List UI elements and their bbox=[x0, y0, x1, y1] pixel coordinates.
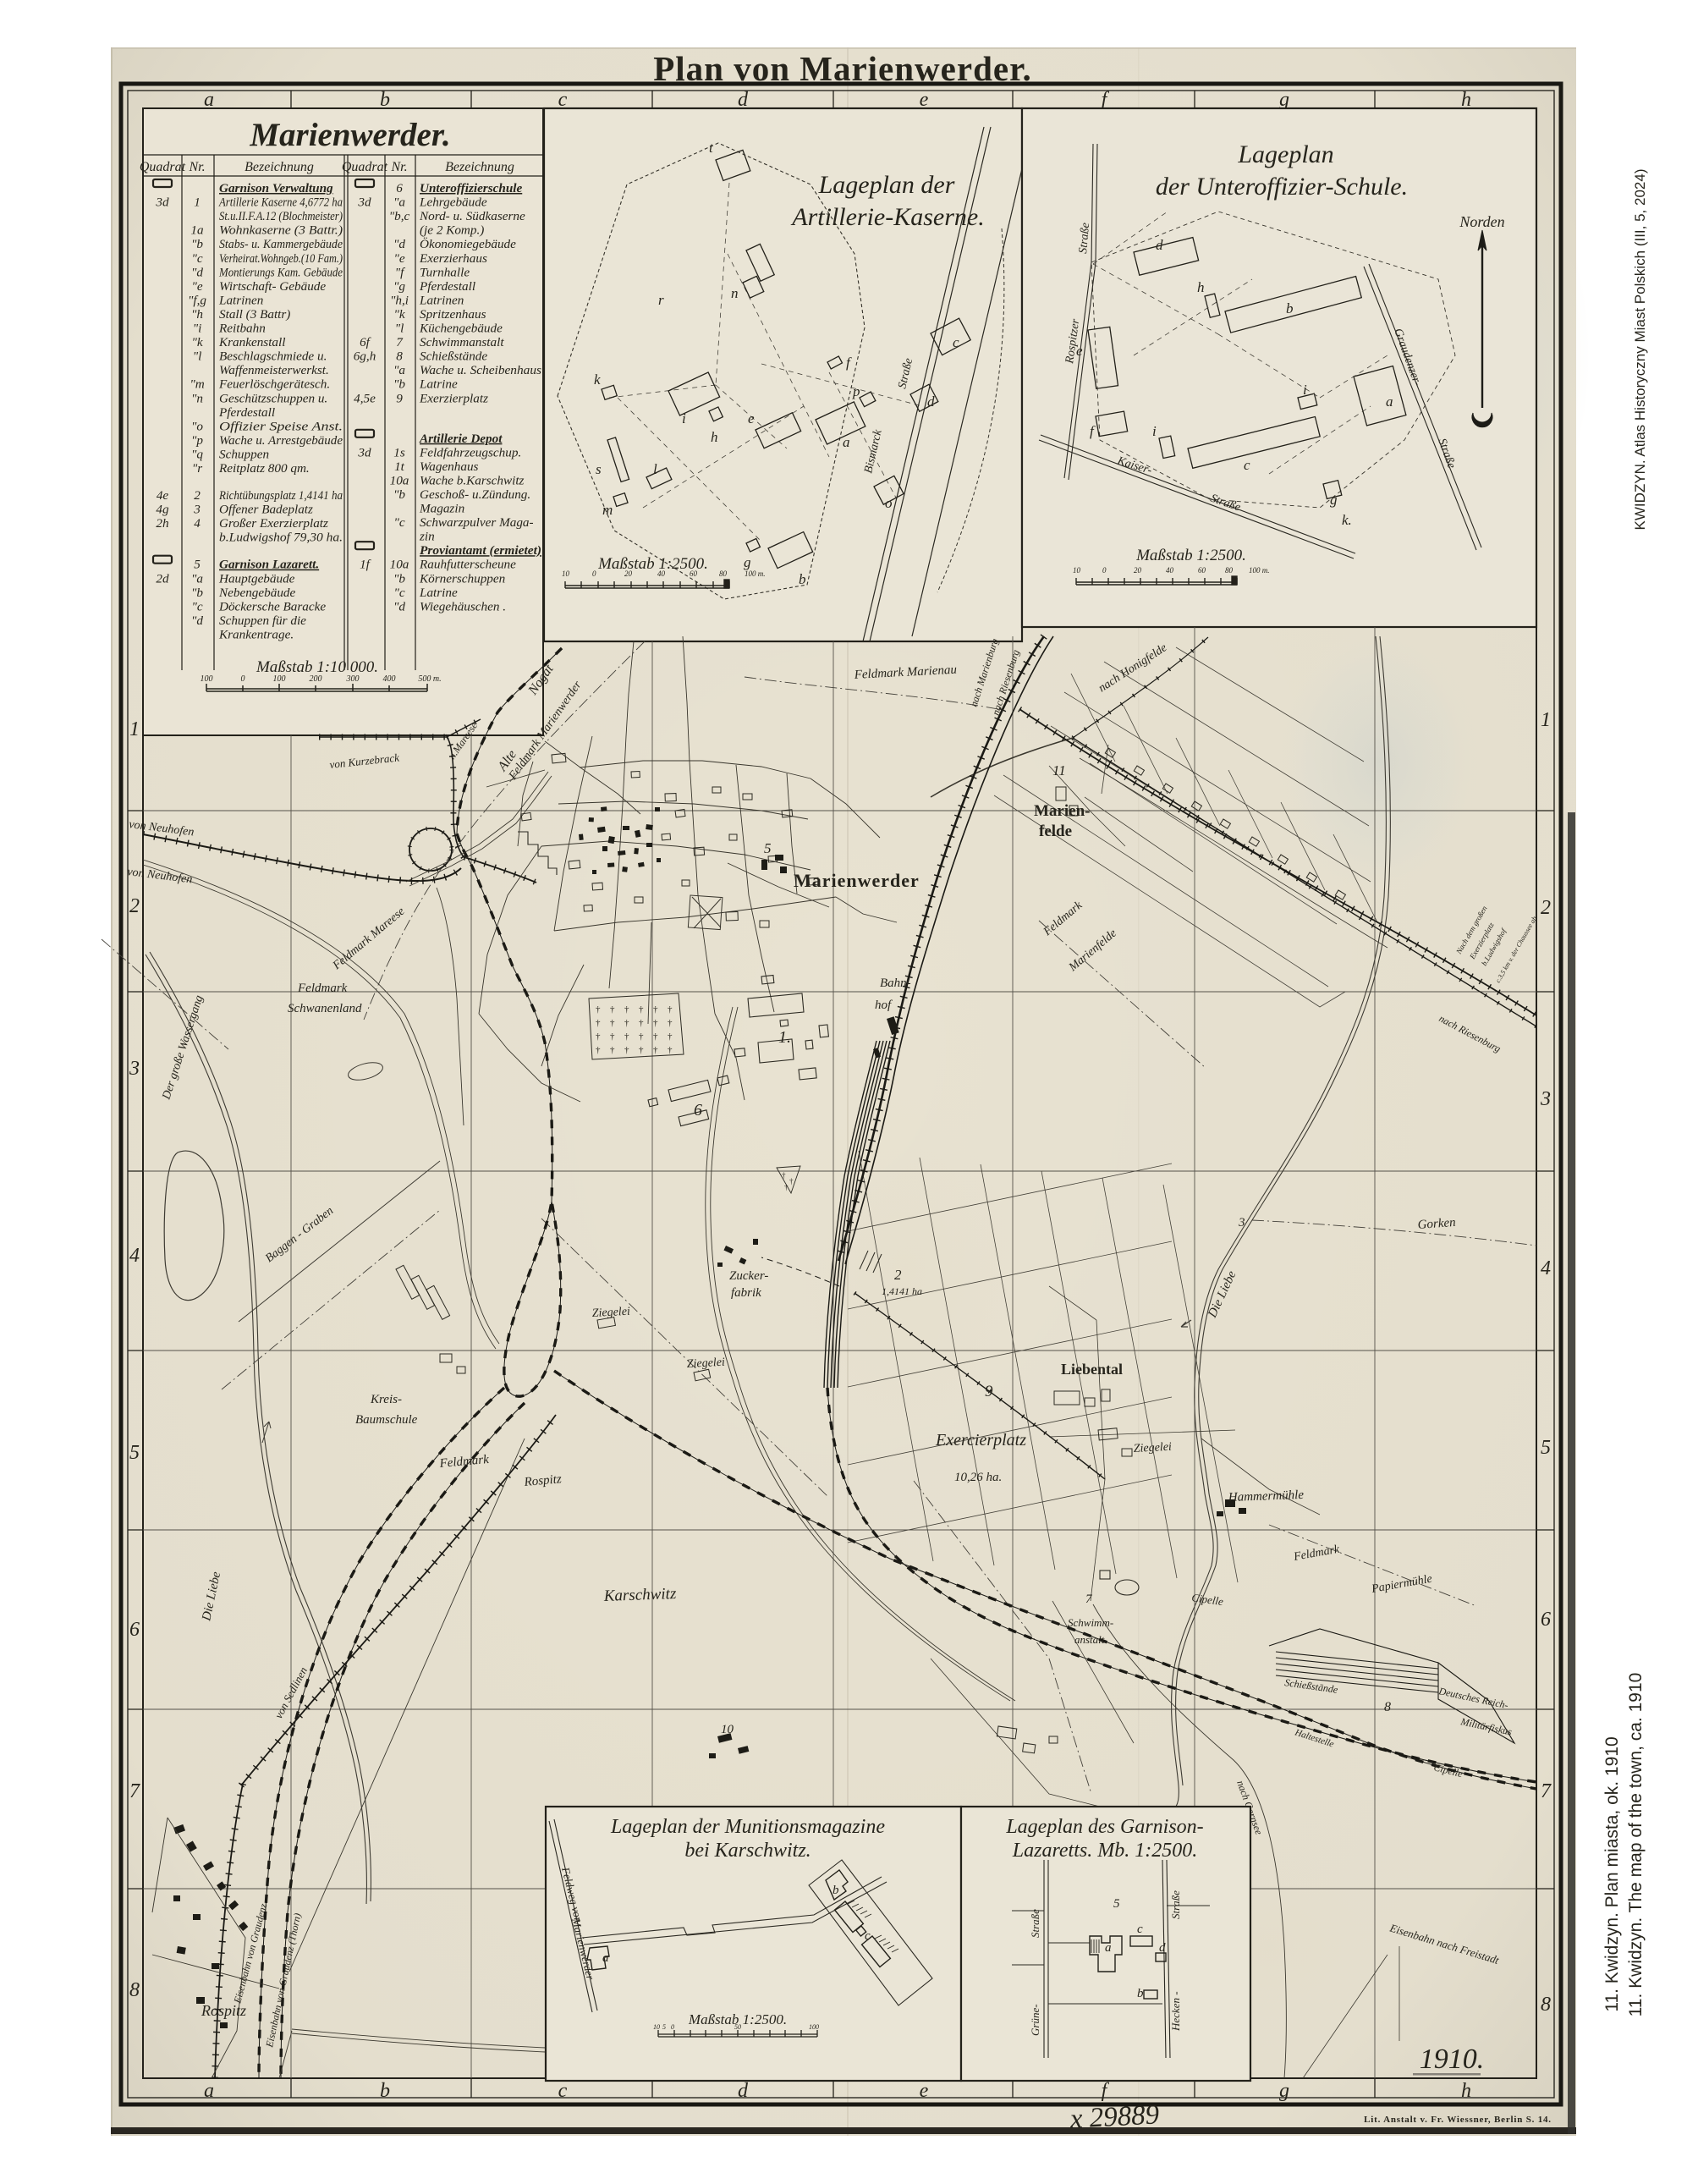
svg-text:"a: "a bbox=[191, 571, 203, 586]
svg-text:400: 400 bbox=[383, 674, 396, 684]
svg-text:†: † bbox=[624, 1045, 629, 1055]
svg-text:"g: "g bbox=[393, 279, 405, 294]
svg-text:Exerzierplatz: Exerzierplatz bbox=[419, 391, 488, 405]
svg-text:Maßstab 1:2500.: Maßstab 1:2500. bbox=[1135, 547, 1246, 564]
svg-text:10: 10 bbox=[1073, 566, 1081, 575]
svg-text:c: c bbox=[1137, 1923, 1143, 1936]
svg-text:Bahn-: Bahn- bbox=[880, 976, 911, 990]
svg-text:2: 2 bbox=[129, 895, 140, 917]
svg-text:"a: "a bbox=[393, 363, 405, 377]
svg-text:†: † bbox=[668, 1018, 673, 1028]
svg-text:100 m.: 100 m. bbox=[745, 569, 766, 578]
svg-text:h: h bbox=[1461, 2080, 1471, 2102]
svg-text:60: 60 bbox=[690, 569, 698, 578]
svg-text:Bezeichnung: Bezeichnung bbox=[445, 160, 514, 174]
svg-text:†: † bbox=[639, 1018, 644, 1028]
svg-text:1: 1 bbox=[1541, 709, 1551, 731]
svg-text:Lazaretts. Mb. 1:2500.: Lazaretts. Mb. 1:2500. bbox=[1012, 1840, 1197, 1862]
svg-text:"f: "f bbox=[395, 265, 405, 279]
svg-text:Rauhfutterscheune: Rauhfutterscheune bbox=[419, 558, 516, 572]
svg-text:"q: "q bbox=[191, 448, 203, 462]
svg-text:Latrinen: Latrinen bbox=[218, 293, 263, 307]
svg-text:2: 2 bbox=[1541, 897, 1551, 919]
svg-text:5: 5 bbox=[764, 840, 772, 856]
svg-text:k.: k. bbox=[1342, 512, 1352, 528]
svg-text:Offener Badeplatz: Offener Badeplatz bbox=[219, 503, 313, 517]
svg-text:Kreis-: Kreis- bbox=[370, 1393, 402, 1406]
svg-text:Beschlagschmiede u.: Beschlagschmiede u. bbox=[219, 349, 327, 364]
svg-text:6: 6 bbox=[129, 1619, 140, 1641]
svg-text:0: 0 bbox=[671, 2023, 674, 2031]
svg-text:100 m.: 100 m. bbox=[1249, 566, 1270, 575]
svg-text:3: 3 bbox=[129, 1058, 140, 1080]
svg-text:k: k bbox=[594, 371, 601, 388]
svg-text:†: † bbox=[653, 1004, 658, 1015]
svg-text:d: d bbox=[738, 2080, 749, 2102]
svg-text:e: e bbox=[748, 410, 755, 426]
svg-text:40: 40 bbox=[657, 569, 666, 578]
svg-text:Lit. Anstalt v. Fr. Wiessner,: Lit. Anstalt v. Fr. Wiessner, Berlin S. … bbox=[1364, 2115, 1552, 2125]
svg-text:Exercierplatz: Exercierplatz bbox=[935, 1431, 1026, 1450]
svg-text:"k: "k bbox=[191, 335, 202, 349]
svg-text:Körnerschuppen: Körnerschuppen bbox=[419, 571, 505, 586]
svg-text:"b: "b bbox=[191, 237, 203, 251]
svg-text:7: 7 bbox=[129, 1780, 140, 1802]
svg-text:20: 20 bbox=[624, 569, 633, 578]
svg-text:1910.: 1910. bbox=[1420, 2044, 1485, 2075]
svg-text:Liebental: Liebental bbox=[1061, 1361, 1123, 1378]
svg-text:a: a bbox=[602, 1951, 609, 1965]
svg-text:Pferdestall: Pferdestall bbox=[218, 405, 275, 420]
svg-text:Wohnkaserne (3 Battr.): Wohnkaserne (3 Battr.) bbox=[219, 223, 343, 238]
svg-text:"b,c: "b,c bbox=[389, 209, 410, 223]
svg-text:Exerzierhaus: Exerzierhaus bbox=[419, 251, 487, 266]
svg-text:Marien-: Marien- bbox=[1034, 802, 1090, 820]
svg-text:r: r bbox=[658, 292, 664, 308]
svg-text:11. Kwidzyn. Plan miasta, ok.: 11. Kwidzyn. Plan miasta, ok. 1910 bbox=[1602, 1736, 1622, 2011]
svg-text:g: g bbox=[1330, 492, 1338, 508]
svg-text:Garnison Lazarett.: Garnison Lazarett. bbox=[219, 558, 319, 572]
svg-text:Montierungs Kam. Gebäude: Montierungs Kam. Gebäude bbox=[218, 265, 343, 279]
svg-text:Schwanenland: Schwanenland bbox=[288, 1002, 362, 1015]
svg-text:Proviantamt (ermietet): Proviantamt (ermietet) bbox=[420, 543, 541, 558]
svg-text:Grüne-: Grüne- bbox=[1029, 2004, 1041, 2036]
svg-text:fabrik: fabrik bbox=[731, 1286, 761, 1300]
svg-text:Stabs- u. Kammergebäude: Stabs- u. Kammergebäude bbox=[219, 237, 343, 251]
svg-text:11: 11 bbox=[1052, 762, 1066, 778]
svg-text:a: a bbox=[204, 2080, 214, 2102]
svg-text:"h: "h bbox=[191, 307, 203, 322]
svg-text:4: 4 bbox=[1541, 1257, 1551, 1279]
svg-text:a: a bbox=[843, 434, 850, 450]
svg-text:3: 3 bbox=[1238, 1216, 1245, 1230]
svg-text:†: † bbox=[596, 1018, 601, 1028]
svg-text:"e: "e bbox=[393, 251, 404, 266]
svg-text:"b: "b bbox=[393, 487, 405, 502]
svg-text:Wiegehäuschen .: Wiegehäuschen . bbox=[420, 599, 506, 613]
svg-text:Marienwerder.: Marienwerder. bbox=[249, 117, 450, 153]
svg-text:0: 0 bbox=[1102, 566, 1107, 575]
svg-text:Stall (3 Battr): Stall (3 Battr) bbox=[219, 307, 290, 322]
svg-text:Döckersche Baracke: Döckersche Baracke bbox=[218, 599, 326, 613]
svg-text:1.: 1. bbox=[778, 1028, 791, 1047]
svg-text:80: 80 bbox=[719, 569, 728, 578]
svg-text:8: 8 bbox=[396, 349, 403, 364]
svg-text:†: † bbox=[784, 1183, 789, 1191]
svg-text:300: 300 bbox=[346, 674, 360, 684]
svg-text:3d: 3d bbox=[357, 445, 371, 459]
svg-text:b: b bbox=[380, 2080, 390, 2102]
svg-text:8: 8 bbox=[1541, 1994, 1551, 2016]
svg-text:100: 100 bbox=[201, 674, 213, 684]
svg-text:"c: "c bbox=[191, 599, 202, 613]
svg-text:Quadrat: Quadrat bbox=[140, 160, 186, 174]
svg-text:b: b bbox=[1137, 1987, 1144, 2000]
svg-text:Lehrgebäude: Lehrgebäude bbox=[419, 195, 487, 210]
svg-text:Straße: Straße bbox=[1029, 1909, 1041, 1938]
svg-text:†: † bbox=[639, 1031, 644, 1042]
svg-text:"p: "p bbox=[191, 433, 203, 448]
svg-text:5: 5 bbox=[1113, 1897, 1120, 1911]
svg-text:Nord- u. Südkaserne: Nord- u. Südkaserne bbox=[419, 209, 525, 223]
svg-text:Nr.: Nr. bbox=[390, 160, 407, 174]
svg-text:Norden: Norden bbox=[1459, 213, 1504, 230]
svg-text:Reitplatz 800 qm.: Reitplatz 800 qm. bbox=[218, 461, 310, 476]
svg-text:"b: "b bbox=[191, 586, 203, 600]
svg-text:6: 6 bbox=[396, 181, 403, 195]
svg-text:Bezeichnung: Bezeichnung bbox=[245, 160, 314, 174]
svg-text:Geschützschuppen u.: Geschützschuppen u. bbox=[219, 391, 327, 405]
svg-text:i: i bbox=[682, 410, 686, 426]
svg-text:Hammermühle: Hammermühle bbox=[1228, 1488, 1305, 1505]
svg-text:1,4141 ha: 1,4141 ha bbox=[882, 1285, 922, 1297]
svg-text:"c: "c bbox=[393, 586, 404, 600]
svg-text:Zucker-: Zucker- bbox=[729, 1269, 768, 1283]
svg-text:l: l bbox=[653, 461, 657, 477]
svg-text:c: c bbox=[865, 1929, 871, 1943]
svg-text:1: 1 bbox=[129, 718, 140, 740]
svg-text:8: 8 bbox=[129, 1979, 140, 2001]
svg-text:Maßstab 1:10 000.: Maßstab 1:10 000. bbox=[256, 658, 378, 676]
svg-text:11. Kwidzyn. The map of the to: 11. Kwidzyn. The map of the town, ca. 19… bbox=[1626, 1673, 1646, 2017]
svg-text:n: n bbox=[731, 285, 739, 301]
svg-text:Marienwerder: Marienwerder bbox=[794, 870, 920, 891]
svg-text:5: 5 bbox=[662, 2023, 666, 2031]
svg-text:†: † bbox=[789, 1177, 794, 1186]
svg-text:Straße: Straße bbox=[1077, 223, 1092, 255]
svg-text:Karschwitz: Karschwitz bbox=[602, 1585, 677, 1605]
svg-text:der Unteroffizier-Schule.: der Unteroffizier-Schule. bbox=[1156, 173, 1408, 201]
svg-text:†: † bbox=[653, 1031, 658, 1042]
svg-text:b: b bbox=[833, 1884, 839, 1897]
svg-text:†: † bbox=[596, 1031, 601, 1042]
svg-text:Ziegelei: Ziegelei bbox=[1133, 1441, 1172, 1455]
svg-text:100: 100 bbox=[809, 2023, 819, 2031]
svg-text:Feldfahrzeugschup.: Feldfahrzeugschup. bbox=[419, 445, 521, 459]
svg-text:(je 2 Komp.): (je 2 Komp.) bbox=[420, 223, 484, 238]
svg-text:"d: "d bbox=[393, 237, 405, 251]
svg-text:Schwarzpulver Maga-: Schwarzpulver Maga- bbox=[420, 515, 534, 530]
svg-text:†: † bbox=[668, 1004, 673, 1015]
svg-text:"e: "e bbox=[191, 279, 202, 294]
svg-text:7: 7 bbox=[1541, 1780, 1552, 1802]
svg-text:Feldmark: Feldmark bbox=[297, 982, 348, 995]
svg-text:"a: "a bbox=[393, 195, 405, 210]
svg-text:5: 5 bbox=[129, 1442, 140, 1464]
svg-text:40: 40 bbox=[1166, 566, 1174, 575]
svg-text:d: d bbox=[1156, 237, 1163, 253]
svg-text:Spritzenhaus: Spritzenhaus bbox=[420, 307, 486, 322]
svg-text:10: 10 bbox=[721, 1723, 734, 1736]
svg-text:3d: 3d bbox=[155, 195, 169, 210]
svg-text:b: b bbox=[799, 571, 806, 587]
svg-text:Nebengebäude: Nebengebäude bbox=[218, 586, 296, 600]
svg-text:1t: 1t bbox=[394, 459, 405, 474]
svg-text:Pferdestall: Pferdestall bbox=[419, 279, 475, 294]
svg-text:felde: felde bbox=[1039, 822, 1072, 840]
svg-text:g: g bbox=[744, 554, 751, 570]
svg-text:Straße: Straße bbox=[1169, 1890, 1182, 1919]
svg-text:†: † bbox=[624, 1031, 629, 1042]
svg-text:4: 4 bbox=[129, 1245, 140, 1267]
svg-text:Waffenmeisterwerkst.: Waffenmeisterwerkst. bbox=[219, 363, 329, 377]
svg-text:e: e bbox=[920, 2080, 929, 2102]
svg-text:0: 0 bbox=[592, 569, 596, 578]
svg-text:Schuppen für die: Schuppen für die bbox=[219, 613, 306, 628]
svg-text:3: 3 bbox=[1540, 1088, 1551, 1110]
svg-text:Rospitz: Rospitz bbox=[201, 2002, 246, 2019]
svg-text:2h: 2h bbox=[156, 516, 168, 531]
svg-text:3: 3 bbox=[193, 503, 201, 517]
svg-text:1s: 1s bbox=[393, 445, 405, 459]
svg-text:c: c bbox=[1244, 457, 1250, 473]
svg-text:zin: zin bbox=[419, 530, 435, 544]
svg-text:1: 1 bbox=[194, 195, 201, 210]
svg-text:Nr.: Nr. bbox=[188, 160, 205, 174]
svg-text:20: 20 bbox=[1134, 566, 1142, 575]
svg-text:o: o bbox=[885, 495, 893, 511]
svg-text:†: † bbox=[639, 1004, 644, 1015]
svg-text:4e: 4e bbox=[157, 488, 169, 503]
svg-text:"c: "c bbox=[191, 251, 202, 266]
svg-text:Geschoß- u.Zündung.: Geschoß- u.Zündung. bbox=[420, 487, 530, 502]
svg-text:Wagenhaus: Wagenhaus bbox=[420, 459, 479, 474]
svg-text:Magazin: Magazin bbox=[419, 502, 464, 516]
svg-text:"d: "d bbox=[191, 265, 203, 279]
svg-text:100: 100 bbox=[273, 674, 286, 684]
svg-text:Schwimmanstalt: Schwimmanstalt bbox=[420, 335, 504, 349]
svg-text:†: † bbox=[668, 1031, 673, 1042]
svg-text:200: 200 bbox=[310, 674, 322, 684]
svg-text:†: † bbox=[653, 1045, 658, 1055]
svg-text:Lageplan: Lageplan bbox=[1237, 140, 1333, 168]
svg-text:c: c bbox=[953, 334, 959, 350]
svg-text:Lageplan der: Lageplan der bbox=[818, 171, 955, 199]
svg-text:s: s bbox=[596, 461, 602, 477]
svg-text:Gorken: Gorken bbox=[1417, 1216, 1456, 1232]
svg-text:5: 5 bbox=[1541, 1437, 1551, 1459]
svg-text:p: p bbox=[852, 383, 860, 399]
svg-text:"l: "l bbox=[193, 349, 202, 364]
svg-text:Wache u. Scheibenhaus: Wache u. Scheibenhaus bbox=[420, 363, 541, 377]
svg-text:Verheirat.Wohngeb.(10 Fam.): Verheirat.Wohngeb.(10 Fam.) bbox=[219, 251, 343, 266]
svg-text:Offizier Speise Anst.: Offizier Speise Anst. bbox=[219, 419, 343, 433]
svg-text:†: † bbox=[624, 1004, 629, 1015]
svg-text:Latrinen: Latrinen bbox=[419, 293, 464, 307]
svg-text:"k: "k bbox=[393, 307, 404, 322]
svg-text:anstalt: anstalt bbox=[1074, 1633, 1105, 1646]
svg-text:3d: 3d bbox=[357, 195, 371, 210]
svg-text:Unteroffizierschule: Unteroffizierschule bbox=[420, 181, 522, 195]
svg-text:Krankenstall: Krankenstall bbox=[218, 335, 285, 349]
svg-text:†: † bbox=[782, 1171, 786, 1180]
svg-text:Quadrat: Quadrat bbox=[342, 160, 388, 174]
svg-text:Küchengebäude: Küchengebäude bbox=[419, 322, 503, 336]
svg-text:Krankentrage.: Krankentrage. bbox=[218, 628, 294, 642]
svg-text:Reitbahn: Reitbahn bbox=[218, 322, 266, 336]
svg-text:"b: "b bbox=[393, 377, 405, 392]
svg-text:†: † bbox=[596, 1045, 601, 1055]
svg-text:8: 8 bbox=[1384, 1700, 1391, 1714]
svg-text:i: i bbox=[1152, 423, 1157, 439]
svg-text:Lageplan der Munitionsmagazine: Lageplan der Munitionsmagazine bbox=[610, 1816, 885, 1838]
svg-text:d: d bbox=[1159, 1941, 1166, 1955]
svg-text:Ökonomiegebäude: Ökonomiegebäude bbox=[420, 237, 516, 251]
svg-text:Artillerie Kaserne 4,6772 ha: Artillerie Kaserne 4,6772 ha bbox=[218, 195, 343, 210]
svg-text:Artillerie Depot: Artillerie Depot bbox=[419, 432, 503, 446]
svg-text:"d: "d bbox=[393, 599, 405, 613]
svg-text:Latrine: Latrine bbox=[419, 377, 458, 392]
svg-text:c: c bbox=[558, 2080, 568, 2102]
svg-text:"o: "o bbox=[191, 419, 203, 433]
svg-text:Wache b.Karschwitz: Wache b.Karschwitz bbox=[420, 474, 525, 488]
svg-text:Baumschule: Baumschule bbox=[355, 1413, 418, 1427]
svg-text:10a: 10a bbox=[390, 474, 409, 488]
svg-text:Richtübungsplatz 1,4141 ha: Richtübungsplatz 1,4141 ha bbox=[218, 488, 343, 503]
svg-text:Hecken -: Hecken - bbox=[1169, 1991, 1182, 2032]
svg-text:hof: hof bbox=[875, 998, 893, 1012]
svg-text:h: h bbox=[1197, 279, 1205, 295]
svg-text:4,5e: 4,5e bbox=[354, 391, 376, 405]
svg-text:6g,h: 6g,h bbox=[354, 349, 376, 364]
svg-text:Lageplan des Garnison-: Lageplan des Garnison- bbox=[1005, 1816, 1203, 1838]
svg-text:500 m.: 500 m. bbox=[418, 674, 441, 684]
svg-text:Feuerlöschgerätesch.: Feuerlöschgerätesch. bbox=[218, 377, 330, 392]
svg-text:†: † bbox=[610, 1018, 615, 1028]
svg-text:10: 10 bbox=[562, 569, 570, 578]
svg-text:x 29889: x 29889 bbox=[1069, 2099, 1160, 2135]
svg-text:Großer Exerzierplatz: Großer Exerzierplatz bbox=[219, 516, 328, 531]
svg-text:0: 0 bbox=[241, 674, 245, 684]
svg-text:9: 9 bbox=[985, 1383, 993, 1400]
svg-text:Ziegelei: Ziegelei bbox=[686, 1356, 725, 1371]
svg-text:†: † bbox=[653, 1018, 658, 1028]
svg-text:80: 80 bbox=[1225, 566, 1234, 575]
svg-text:m: m bbox=[602, 502, 613, 518]
svg-text:"b: "b bbox=[393, 571, 405, 586]
svg-text:b.Ludwigshof 79,30 ha.: b.Ludwigshof 79,30 ha. bbox=[219, 531, 343, 545]
svg-text:Wache u. Arrestgebäude: Wache u. Arrestgebäude bbox=[219, 433, 343, 448]
svg-text:"r: "r bbox=[192, 461, 202, 476]
svg-text:9: 9 bbox=[396, 391, 403, 405]
svg-text:KWIDZYN. Atlas Historyczny Mia: KWIDZYN. Atlas Historyczny Miast Polskic… bbox=[1632, 168, 1648, 530]
svg-text:†: † bbox=[624, 1018, 629, 1028]
svg-text:Ziegelei: Ziegelei bbox=[591, 1306, 630, 1320]
svg-text:g: g bbox=[1279, 2080, 1289, 2102]
svg-text:a: a bbox=[1105, 1941, 1112, 1955]
svg-text:†: † bbox=[596, 1004, 601, 1015]
svg-text:"n: "n bbox=[191, 391, 203, 405]
svg-text:10: 10 bbox=[653, 2023, 660, 2031]
svg-text:2: 2 bbox=[894, 1267, 902, 1283]
svg-text:"d: "d bbox=[191, 613, 203, 628]
svg-text:50: 50 bbox=[734, 2023, 741, 2031]
svg-text:†: † bbox=[610, 1004, 615, 1015]
svg-text:"c: "c bbox=[393, 515, 404, 530]
svg-text:Latrine: Latrine bbox=[419, 586, 458, 600]
svg-text:5: 5 bbox=[194, 558, 201, 572]
svg-text:10a: 10a bbox=[390, 558, 409, 572]
svg-text:2: 2 bbox=[194, 488, 201, 503]
svg-text:Garnison Verwaltung: Garnison Verwaltung bbox=[219, 181, 333, 195]
svg-text:†: † bbox=[668, 1045, 673, 1055]
svg-text:10,26 ha.: 10,26 ha. bbox=[954, 1471, 1002, 1484]
svg-text:h: h bbox=[711, 429, 718, 445]
svg-text:4: 4 bbox=[194, 516, 201, 531]
svg-text:60: 60 bbox=[1198, 566, 1206, 575]
svg-text:†: † bbox=[639, 1045, 644, 1055]
svg-text:Artillerie-Kaserne.: Artillerie-Kaserne. bbox=[790, 203, 984, 231]
svg-text:Schwimm-: Schwimm- bbox=[1068, 1616, 1113, 1629]
svg-text:†: † bbox=[610, 1031, 615, 1042]
svg-text:a: a bbox=[1386, 393, 1393, 410]
svg-text:"l: "l bbox=[395, 322, 404, 336]
svg-text:Schuppen: Schuppen bbox=[219, 448, 269, 462]
svg-text:St.u.II.F.A.12 (Blochmeister): St.u.II.F.A.12 (Blochmeister) bbox=[219, 209, 343, 223]
svg-text:"f,g: "f,g bbox=[188, 293, 206, 307]
svg-text:bei Karschwitz.: bei Karschwitz. bbox=[684, 1840, 811, 1862]
svg-text:Hauptgebäude: Hauptgebäude bbox=[218, 571, 295, 586]
svg-text:Wirtschaft- Gebäude: Wirtschaft- Gebäude bbox=[219, 279, 326, 294]
svg-text:6: 6 bbox=[694, 1101, 702, 1120]
svg-text:†: † bbox=[610, 1045, 615, 1055]
svg-text:6: 6 bbox=[1541, 1609, 1551, 1631]
svg-text:b: b bbox=[1286, 300, 1294, 316]
svg-text:Turnhalle: Turnhalle bbox=[420, 265, 470, 279]
svg-text:1f: 1f bbox=[360, 558, 371, 572]
svg-text:"m: "m bbox=[190, 377, 204, 392]
svg-text:2d: 2d bbox=[156, 571, 169, 586]
svg-text:Schießstände: Schießstände bbox=[420, 349, 487, 364]
svg-text:1a: 1a bbox=[190, 223, 204, 238]
svg-text:4g: 4g bbox=[156, 503, 169, 517]
svg-text:6f: 6f bbox=[360, 335, 371, 349]
svg-text:d: d bbox=[927, 393, 935, 410]
svg-text:"h,i: "h,i bbox=[390, 293, 409, 307]
svg-text:"i: "i bbox=[193, 322, 202, 336]
